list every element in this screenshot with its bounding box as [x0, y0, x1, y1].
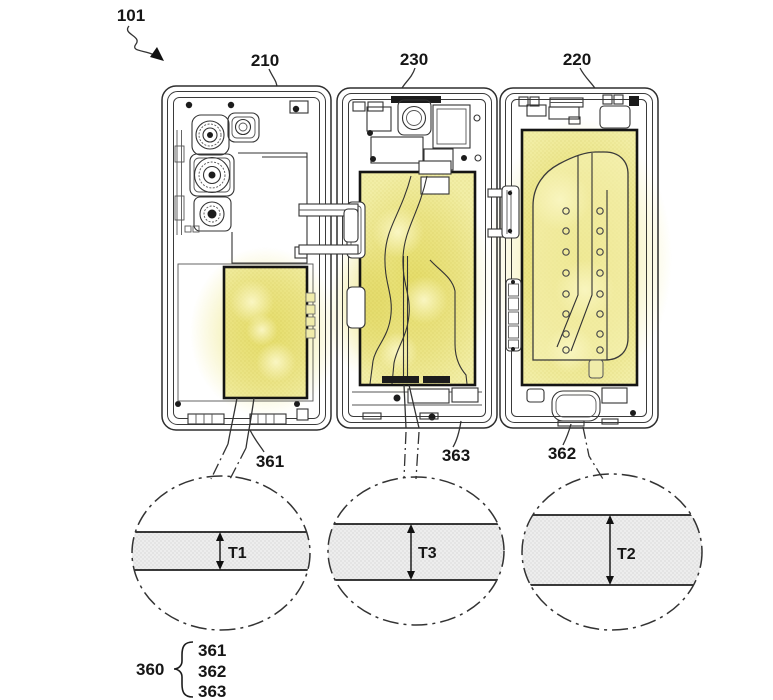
panel-label-230: 230 [400, 50, 428, 69]
panel-label-220: 220 [563, 50, 591, 69]
part-label-363: 363 [442, 446, 470, 465]
patent-figure-page: 101 210 230 220 [0, 0, 773, 700]
hinge-side-stack [506, 279, 521, 351]
battery-362 [488, 118, 672, 398]
panel-210-drawing [162, 86, 340, 430]
thickness-label-t3: T3 [418, 545, 437, 562]
panel-labels: 210 230 220 [251, 50, 596, 90]
part-label-361: 361 [256, 452, 284, 471]
detail-view-t2: T2 [518, 474, 706, 630]
detail-view-t1: T1 [128, 476, 314, 630]
thickness-label-t1: T1 [228, 545, 247, 562]
legend-group-360: 360 361 362 363 [136, 641, 226, 700]
arrowhead-icon [150, 47, 164, 61]
squiggle-arrow [127, 26, 154, 55]
legend-member-361: 361 [198, 641, 226, 660]
battery-361 [190, 247, 340, 417]
legend-member-362: 362 [198, 662, 226, 681]
curly-brace [174, 642, 193, 697]
panel-220-drawing [488, 88, 672, 428]
thickness-label-t2: T2 [617, 546, 636, 563]
legend-group-label: 360 [136, 660, 164, 679]
panel-230-drawing [327, 88, 497, 428]
detail-view-t3: T3 [324, 477, 508, 625]
legend-member-363: 363 [198, 682, 226, 700]
assembly-ref-label: 101 [117, 6, 145, 25]
panel-label-210: 210 [251, 51, 279, 70]
part-label-362: 362 [548, 444, 576, 463]
figure-canvas: 101 210 230 220 [0, 0, 773, 700]
assembly-reference: 101 [117, 6, 164, 61]
battery-cell-outline [533, 152, 628, 360]
